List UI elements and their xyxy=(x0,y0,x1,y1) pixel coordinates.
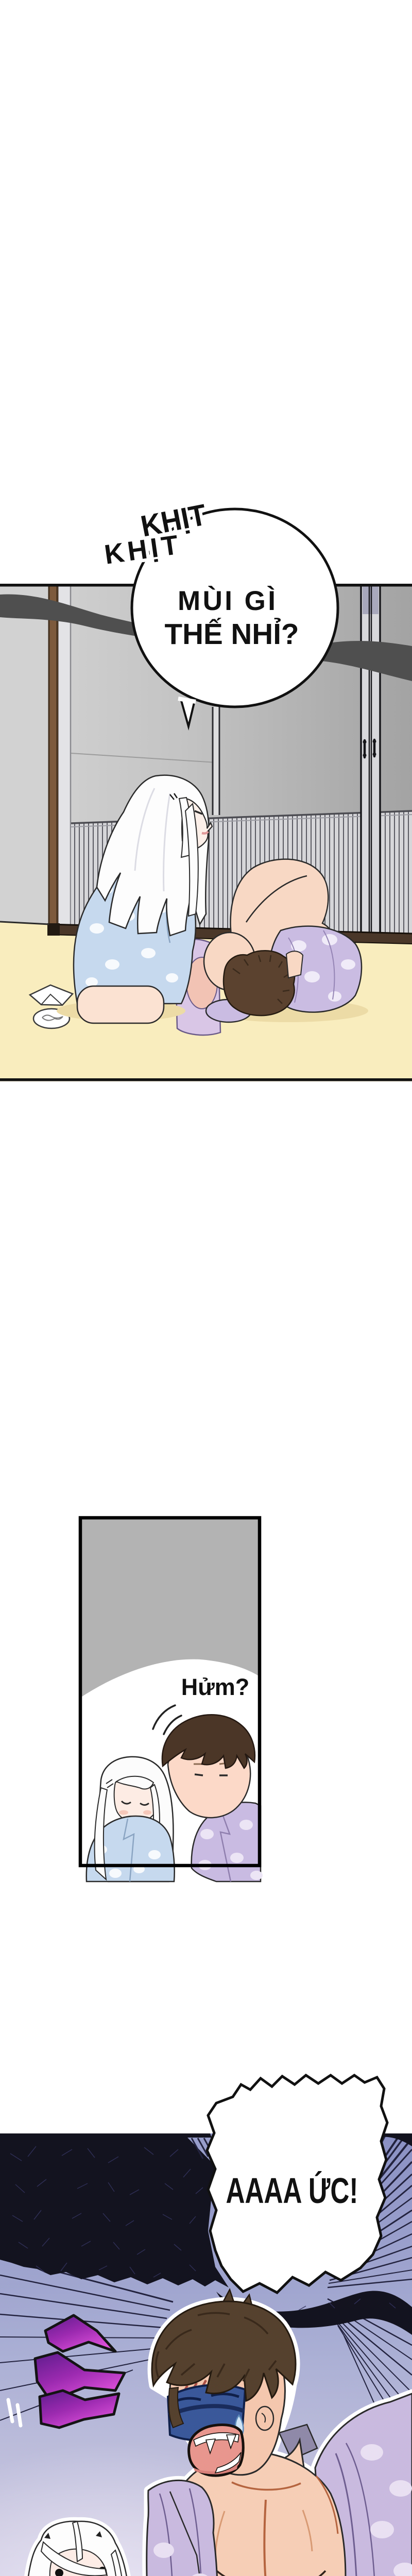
svg-text:MÙI GÌ: MÙI GÌ xyxy=(178,585,276,616)
svg-text:Hửm?: Hửm? xyxy=(181,1674,250,1700)
svg-text:AAAA ỨC!: AAAA ỨC! xyxy=(226,2171,358,2211)
svg-text:THẾ NHỈ?: THẾ NHỈ? xyxy=(165,617,299,651)
